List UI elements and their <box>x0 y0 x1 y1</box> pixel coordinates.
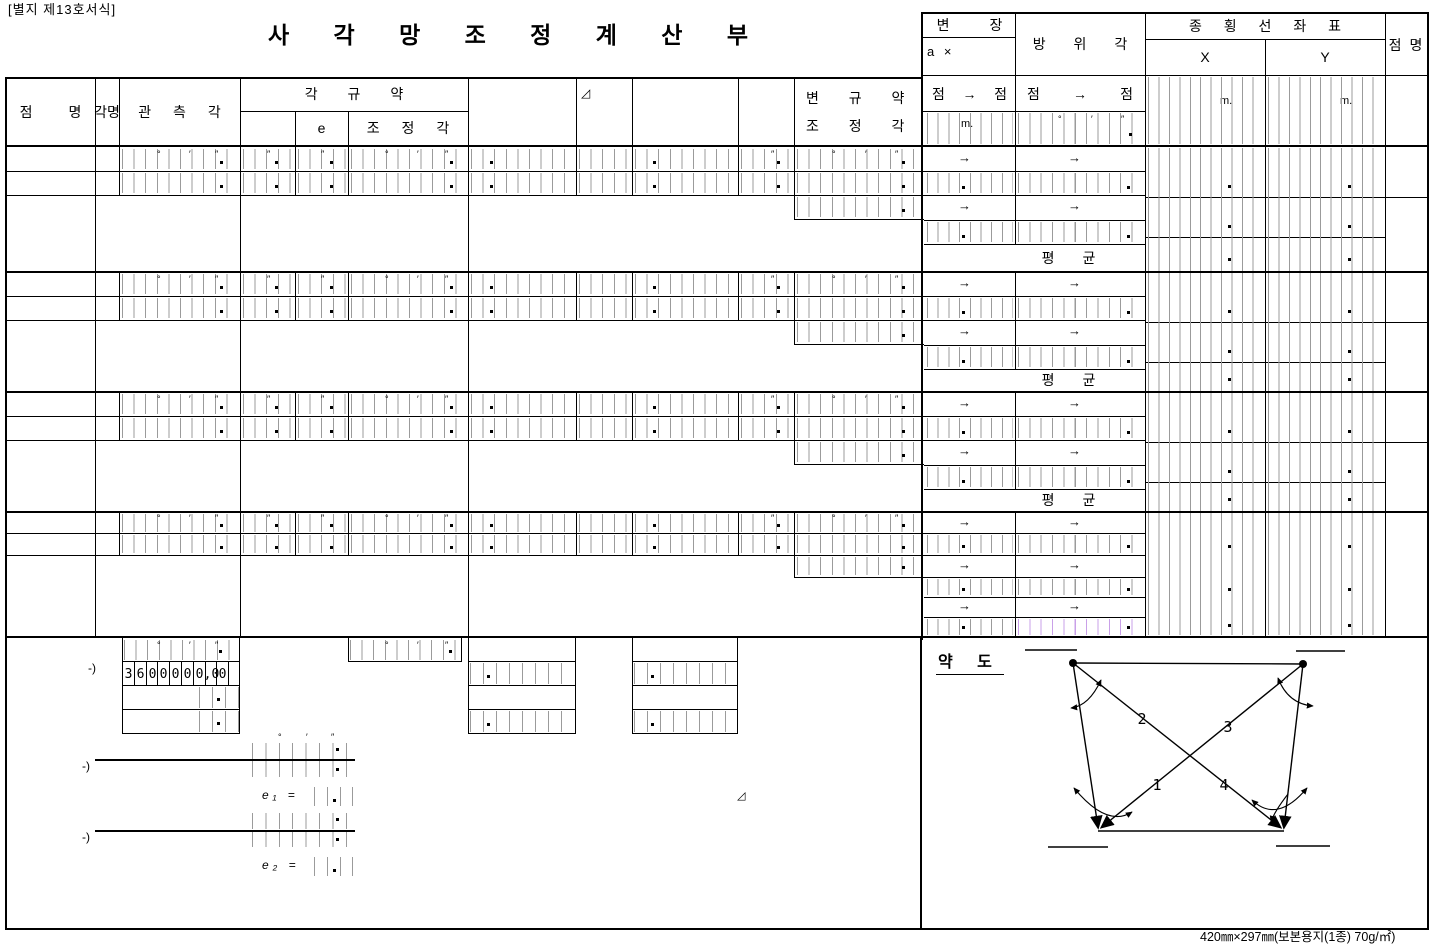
digit-tick-cells <box>797 197 922 217</box>
decimal-dot <box>1127 311 1130 314</box>
digit-tick-cells <box>927 222 1013 242</box>
dms-sec-symbol: ″ <box>445 514 448 523</box>
rule-line <box>295 112 296 146</box>
decimal-dot <box>777 286 780 289</box>
digit-tick-cells <box>1148 273 1263 391</box>
digit-tick-cells <box>122 298 238 318</box>
decimal-dot <box>1228 350 1231 353</box>
sum-digit-cell: 0 <box>147 665 158 683</box>
col-header-side-rule-line2: 조 정 각 <box>806 118 917 134</box>
decimal-dot <box>336 818 339 821</box>
tick-line <box>327 857 328 876</box>
rule-line <box>1427 12 1429 930</box>
dms-min-symbol: ′ <box>189 641 191 650</box>
decimal-dot <box>1127 545 1130 548</box>
decimal-dot <box>962 360 965 363</box>
dms-deg-symbol: ° <box>278 733 282 742</box>
decimal-dot <box>220 286 223 289</box>
digit-tick-cells <box>1148 393 1263 511</box>
decimal-dot <box>1348 185 1351 188</box>
decimal-dot <box>1228 310 1231 313</box>
decimal-dot <box>1228 545 1231 548</box>
dms-min-symbol: ′ <box>189 395 191 404</box>
arrow-icon: → <box>958 558 971 571</box>
rule-line <box>922 37 1015 38</box>
paper-size-footer: 420㎜×297㎜(보본용지(1종) 70g/㎡) <box>1200 930 1395 944</box>
digit-tick-cells <box>471 173 574 193</box>
diagonal-tr-bl <box>1102 664 1303 827</box>
digit-tick-cells <box>797 298 922 318</box>
digit-tick-cells <box>1268 393 1383 511</box>
decimal-dot <box>962 545 965 548</box>
dms-deg-symbol: ° <box>832 150 836 159</box>
rule-line <box>576 78 577 146</box>
digit-tick-cells <box>243 173 293 193</box>
arrow-icon: → <box>958 324 971 337</box>
digit-tick-cells <box>1018 579 1143 595</box>
rule-line <box>794 392 795 464</box>
rule-line <box>632 709 738 710</box>
digit-tick-cells <box>927 113 1013 144</box>
rule-line <box>468 638 469 734</box>
decimal-dot <box>490 310 493 313</box>
dms-deg-symbol: ° <box>385 150 389 159</box>
decimal-dot <box>330 546 333 549</box>
rule-line <box>6 195 1145 196</box>
digit-tick-cells <box>1018 418 1143 438</box>
rule-line <box>468 661 576 662</box>
decimal-dot <box>330 286 333 289</box>
decimal-dot <box>962 431 965 434</box>
digit-tick-cells <box>351 514 466 532</box>
decimal-dot <box>1348 498 1351 501</box>
arrow-icon: → <box>1068 444 1081 457</box>
decimal-dot <box>490 286 493 289</box>
rule-line <box>95 759 355 761</box>
decimal-dot <box>1228 225 1231 228</box>
decimal-dot <box>275 546 278 549</box>
decimal-dot <box>902 546 905 549</box>
rule-line <box>632 733 738 734</box>
digit-tick-cells <box>741 418 792 438</box>
digit-tick-cells <box>1148 77 1263 144</box>
rule-line <box>576 392 577 440</box>
dms-sec-symbol: ″ <box>215 514 218 523</box>
dms-sec-symbol: ″ <box>215 150 218 159</box>
rule-line <box>576 512 577 555</box>
decimal-dot <box>1348 310 1351 313</box>
digit-tick-cells <box>741 149 792 169</box>
rule-line <box>122 709 240 710</box>
rule-line <box>122 638 123 734</box>
dms-sec-symbol: ″ <box>771 150 774 159</box>
digit-tick-cells <box>635 418 736 438</box>
rule-line <box>738 512 739 555</box>
dms-deg-symbol: ° <box>832 395 836 404</box>
digit-tick-cells <box>797 274 922 294</box>
decimal-dot <box>902 334 905 337</box>
decimal-dot <box>1127 626 1130 629</box>
vertex-top-right <box>1299 660 1307 668</box>
tick-line <box>314 857 315 876</box>
angle-arc-top-right <box>1278 678 1313 706</box>
col-header-point-name: 점 명 <box>6 79 95 145</box>
digit-tick-cells <box>1018 467 1143 487</box>
subheader-pt-to-pt-side: 점→점 <box>926 79 1013 110</box>
rule-line <box>575 638 576 734</box>
decimal-dot <box>902 566 905 569</box>
arrow-icon: → <box>1068 558 1081 571</box>
decimal-dot <box>1127 235 1130 238</box>
digit-tick-cells <box>927 619 1013 635</box>
arrow-icon: → <box>1073 86 1087 102</box>
decimal-dot <box>653 524 656 527</box>
arrow-icon: → <box>1068 324 1081 337</box>
decimal-dot <box>490 406 493 409</box>
rule-line <box>6 77 923 79</box>
digit-tick-cells <box>1018 173 1143 193</box>
decimal-dot <box>490 161 493 164</box>
rule-line <box>6 320 1145 321</box>
tick-line <box>340 787 341 806</box>
rule-line <box>738 147 739 195</box>
dms-sec-symbol: ″ <box>771 395 774 404</box>
decimal-dot <box>653 546 656 549</box>
dms-sec-symbol: ″ <box>771 514 774 523</box>
rule-line <box>794 78 795 146</box>
decimal-dot <box>275 161 278 164</box>
decimal-dot <box>1127 360 1130 363</box>
decimal-dot <box>962 588 965 591</box>
dms-min-symbol: ′ <box>306 733 308 742</box>
decimal-dot <box>336 838 339 841</box>
col-header-angle-name: 각명 <box>98 80 116 144</box>
dms-sec-symbol: ″ <box>895 514 898 523</box>
rule-line <box>295 512 296 555</box>
rule-line <box>632 147 633 195</box>
rule-line <box>240 111 468 112</box>
decimal-dot <box>777 161 780 164</box>
rule-line <box>468 78 469 638</box>
dms-deg-symbol: ° <box>385 395 389 404</box>
digit-tick-cells <box>122 535 238 553</box>
decimal-dot <box>490 430 493 433</box>
decimal-dot <box>330 524 333 527</box>
dms-deg-symbol: ° <box>385 275 389 284</box>
digit-tick-cells <box>1018 347 1143 367</box>
decimal-dot <box>902 406 905 409</box>
decimal-dot <box>449 650 452 653</box>
rule-line <box>924 345 1145 346</box>
dms-min-symbol: ′ <box>417 395 419 404</box>
digit-tick-cells <box>634 711 736 732</box>
rule-line <box>576 147 577 195</box>
decimal-dot <box>330 430 333 433</box>
digit-tick-cells <box>1268 273 1383 391</box>
mean-cell: 평 균 <box>924 244 1145 272</box>
page-title: 사 각 망 조 정 계 산 부 <box>230 22 805 48</box>
digit-tick-cells <box>351 394 466 414</box>
digit-tick-cells <box>635 149 736 169</box>
digit-tick-cells <box>122 274 238 294</box>
digit-tick-cells <box>927 173 1013 193</box>
digit-tick-cells <box>471 418 574 438</box>
rule-line <box>461 638 462 662</box>
rule-line <box>348 638 349 662</box>
rule-line <box>632 512 633 555</box>
digit-tick-cells <box>350 640 460 660</box>
rule-line <box>1015 13 1016 146</box>
rule-line <box>924 465 1145 466</box>
rule-line <box>119 147 120 195</box>
col-header-y: Y <box>1265 40 1385 75</box>
decimal-dot <box>902 430 905 433</box>
decimal-dot <box>450 310 453 313</box>
rule-line <box>348 147 349 195</box>
digit-tick-cells <box>579 149 630 169</box>
digit-tick-cells <box>927 579 1013 595</box>
diagram-label-2: 2 <box>1137 710 1146 728</box>
digit-tick-cells <box>298 535 346 553</box>
sum-digit-cell: ,0 <box>206 665 217 683</box>
decimal-dot <box>1228 258 1231 261</box>
dms-sec-symbol: ″ <box>215 395 218 404</box>
rule-line <box>295 392 296 440</box>
e1-label: e₁ = <box>262 789 299 803</box>
decimal-dot <box>275 430 278 433</box>
decimal-dot <box>219 650 222 653</box>
digit-tick-cells <box>243 418 293 438</box>
decimal-dot <box>220 524 223 527</box>
digit-tick-cells <box>470 711 574 732</box>
digit-tick-cells <box>741 298 792 318</box>
digit-tick-cells <box>927 418 1013 438</box>
decimal-dot <box>450 430 453 433</box>
arrow-icon: → <box>1068 199 1081 212</box>
digit-tick-cells <box>635 173 736 193</box>
sum-digit-cell: 3 <box>123 665 134 683</box>
decimal-dot <box>333 869 336 872</box>
rule-line <box>348 272 349 320</box>
decimal-dot <box>1348 470 1351 473</box>
decimal-dot <box>220 546 223 549</box>
rule-line <box>738 272 739 320</box>
subheader-pt-to-pt-azimuth: 점→점 <box>1017 79 1143 110</box>
decimal-dot <box>450 546 453 549</box>
rule-line <box>240 78 241 638</box>
decimal-dot <box>902 524 905 527</box>
decimal-dot <box>220 185 223 188</box>
rule-line <box>6 145 1428 147</box>
decimal-dot <box>1228 185 1231 188</box>
digit-tick-cells <box>579 173 630 193</box>
dms-deg-symbol: ° <box>385 514 389 523</box>
decimal-dot <box>1127 431 1130 434</box>
decimal-dot <box>902 310 905 313</box>
decimal-dot <box>487 723 490 726</box>
col-header-x: X <box>1145 40 1265 75</box>
dms-sec-symbol: ″ <box>445 395 448 404</box>
pt-to-label: 점 <box>994 86 1007 102</box>
decimal-dot <box>275 524 278 527</box>
rule-line <box>119 78 120 146</box>
decimal-dot <box>220 161 223 164</box>
dms-deg-symbol: ° <box>1058 115 1062 124</box>
rule-line <box>1385 13 1386 638</box>
col-header-coord-table: 종 횡 선 좌 표 <box>1145 13 1385 39</box>
rule-line <box>239 638 240 734</box>
rule-line <box>122 733 240 734</box>
col-header-angle-rule: 각 규 약 <box>240 78 468 111</box>
decimal-dot <box>450 406 453 409</box>
arrow-icon: → <box>958 276 971 289</box>
decimal-dot <box>1228 624 1231 627</box>
rule-line <box>632 392 633 440</box>
decimal-dot <box>217 698 220 701</box>
rule-line <box>632 272 633 320</box>
rule-line <box>6 440 1145 441</box>
minus-sign-2: -) <box>82 760 90 774</box>
decimal-dot <box>1348 258 1351 261</box>
rule-line <box>632 638 633 734</box>
tick-line <box>352 857 353 876</box>
digit-tick-cells <box>927 298 1013 318</box>
arrow-icon: → <box>1068 515 1081 528</box>
dms-sec-symbol: ″ <box>267 514 270 523</box>
digit-tick-cells <box>797 418 922 438</box>
decimal-dot <box>1127 480 1130 483</box>
decimal-dot <box>330 310 333 313</box>
digit-tick-cells <box>351 173 466 193</box>
digit-tick-cells <box>1018 222 1143 242</box>
digit-tick-cells <box>351 274 466 294</box>
digit-tick-cells <box>471 394 574 414</box>
dms-min-symbol: ′ <box>417 275 419 284</box>
digit-tick-cells <box>797 442 922 462</box>
rule-line <box>794 219 924 220</box>
digit-tick-cells <box>351 418 466 438</box>
decimal-dot <box>653 286 656 289</box>
rule-line <box>468 733 576 734</box>
decimal-dot <box>333 799 336 802</box>
decimal-dot <box>962 480 965 483</box>
dms-min-symbol: ′ <box>865 514 867 523</box>
digit-tick-cells <box>1268 77 1383 144</box>
digit-tick-cells <box>252 831 349 847</box>
quadrilateral-sketch: 2 3 1 4 <box>985 642 1425 857</box>
rule-line <box>922 111 1145 112</box>
digit-tick-cells <box>741 394 792 414</box>
tick-line <box>327 787 328 806</box>
rule-line <box>794 464 924 465</box>
decimal-dot <box>450 524 453 527</box>
dms-sec-symbol: ″ <box>445 150 448 159</box>
arrow-icon: → <box>963 86 977 102</box>
dms-min-symbol: ′ <box>417 641 419 650</box>
arrow-icon: → <box>1068 151 1081 164</box>
digit-tick-cells <box>927 535 1013 553</box>
digit-tick-cells <box>243 298 293 318</box>
decimal-dot <box>450 185 453 188</box>
dms-sec-symbol: ″ <box>331 733 334 742</box>
rule-line <box>794 344 924 345</box>
rule-line <box>1015 272 1016 369</box>
dms-deg-symbol: ° <box>385 641 389 650</box>
dms-sec-symbol: ″ <box>321 150 324 159</box>
dms-min-symbol: ′ <box>189 150 191 159</box>
delta-symbol: ◿ <box>581 87 590 101</box>
digit-tick-cells <box>635 394 736 414</box>
decimal-dot <box>217 722 220 725</box>
dms-sec-symbol: ″ <box>771 275 774 284</box>
sum-digit-cell: 6 <box>135 665 146 683</box>
digit-tick-cells <box>634 663 736 684</box>
decimal-dot <box>450 286 453 289</box>
rule-line <box>295 147 296 195</box>
dms-sec-symbol: ″ <box>1121 115 1124 124</box>
dms-sec-symbol: ″ <box>321 514 324 523</box>
rule-line <box>95 830 355 832</box>
digit-tick-cells <box>351 535 466 553</box>
digit-tick-cells <box>471 535 574 553</box>
pt-to-label: 점 <box>1120 86 1133 102</box>
rule-line <box>348 112 349 146</box>
digit-tick-cells <box>797 394 922 414</box>
digit-tick-cells <box>927 347 1013 367</box>
rule-line <box>921 12 1428 14</box>
decimal-dot <box>275 406 278 409</box>
dms-sec-symbol: ″ <box>267 395 270 404</box>
digit-tick-cells <box>471 514 574 532</box>
rule-line <box>348 512 349 555</box>
dms-deg-symbol: ° <box>832 275 836 284</box>
digit-tick-cells <box>1018 298 1143 318</box>
decimal-dot <box>490 546 493 549</box>
digit-tick-cells <box>1018 113 1143 144</box>
decimal-dot <box>777 310 780 313</box>
dms-deg-symbol: ° <box>157 514 161 523</box>
rule-line <box>119 512 120 555</box>
decimal-dot <box>490 524 493 527</box>
decimal-dot <box>1348 225 1351 228</box>
digit-tick-cells <box>797 173 922 193</box>
rule-line <box>1015 512 1016 637</box>
digit-tick-cells <box>797 535 922 553</box>
digit-tick-cells <box>579 274 630 294</box>
digit-tick-cells <box>243 535 293 553</box>
dms-deg-symbol: ° <box>157 275 161 284</box>
digit-tick-cells <box>298 298 346 318</box>
form-page: [별지 제13호서식] 사 각 망 조 정 계 산 부 420㎜×297㎜(보본… <box>0 0 1430 944</box>
decimal-dot <box>902 185 905 188</box>
rule-line <box>632 661 738 662</box>
digit-tick-cells <box>797 514 922 532</box>
decimal-dot <box>777 430 780 433</box>
decimal-dot <box>1228 470 1231 473</box>
rule-line <box>348 661 462 662</box>
decimal-dot <box>777 546 780 549</box>
decimal-dot <box>651 723 654 726</box>
decimal-dot <box>336 748 339 751</box>
rule-line <box>468 709 576 710</box>
rule-line <box>348 392 349 440</box>
col-header-side-length: 변 장 <box>924 13 1015 37</box>
decimal-dot <box>653 406 656 409</box>
diagram-label-1: 1 <box>1152 776 1161 794</box>
diagram-label-4: 4 <box>1219 776 1228 794</box>
rule-line <box>5 77 7 930</box>
decimal-dot <box>1348 430 1351 433</box>
